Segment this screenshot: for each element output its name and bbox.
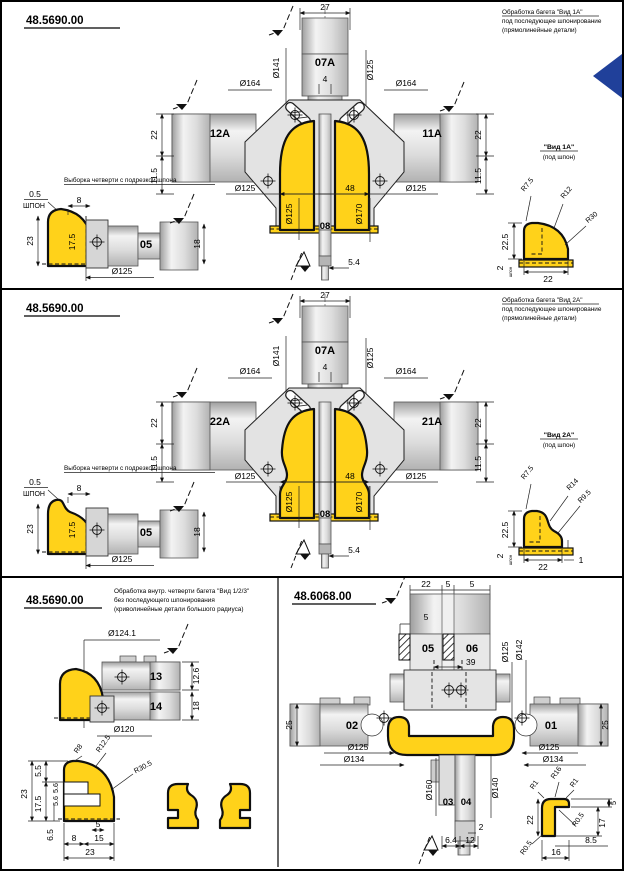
profile-detail: R16 R1 R1 5 17 R0.5 8.5 16 22 R0.5 xyxy=(518,765,618,861)
shaft-label: 08 xyxy=(320,509,331,520)
dim: Ø160 xyxy=(424,779,434,800)
dim: 22 xyxy=(421,579,431,589)
roughness-icon xyxy=(440,82,464,112)
dim: Ø125 xyxy=(112,554,133,564)
dim: Ø125 xyxy=(365,59,375,80)
block-label: 01 xyxy=(545,720,557,732)
moulding-sample xyxy=(168,784,198,828)
dim: 0.5 xyxy=(29,477,41,487)
radius-dim: R16 xyxy=(548,765,563,781)
dim: 11.5 xyxy=(473,168,483,184)
rebate-subdrawing: Выборка четверти с подрезкой шпона 0.5 Ш… xyxy=(23,464,215,569)
dim: 22 xyxy=(149,418,159,428)
dim: 22 xyxy=(543,274,553,284)
dim: 17 xyxy=(597,818,607,828)
note-line: под последующее шпонирование xyxy=(502,306,602,313)
roughness-icon xyxy=(382,578,406,604)
dim: 23 xyxy=(25,524,35,534)
knife-insert xyxy=(443,634,454,660)
radius-dim: R30.5 xyxy=(132,758,153,775)
machining-icon xyxy=(291,540,310,568)
roughness-icon xyxy=(269,6,293,36)
dim: 5 xyxy=(609,801,618,805)
dim: 8 xyxy=(77,483,82,493)
machining-icon xyxy=(419,836,438,864)
dim: Ø125 xyxy=(500,641,510,662)
dim: 22 xyxy=(538,562,548,572)
dim: Ø141 xyxy=(271,57,281,78)
subdrawing-title: Выборка четверти с подрезкой шпона xyxy=(64,464,177,472)
dim: Ø125 xyxy=(348,742,369,752)
roughness-icon xyxy=(269,294,293,324)
dim: 1 xyxy=(579,555,584,565)
profile-notch xyxy=(64,794,100,806)
note-line: Обработка внутр. четверти багета "Вид 1/… xyxy=(114,587,249,595)
panel-vid-1a: 48.5690.00 Обработка багета "Вид 1А" под… xyxy=(2,2,622,290)
view-subtitle: (под шпон) xyxy=(543,154,575,161)
dim: 5 xyxy=(470,579,475,589)
dim: 25 xyxy=(600,720,610,730)
veneer-word: шпон xyxy=(508,554,513,565)
dim: Ø164 xyxy=(396,366,417,376)
roughness-icon xyxy=(440,370,464,400)
roughness-icon xyxy=(170,482,194,512)
machining-icon xyxy=(291,252,310,280)
spindle-label: 07А xyxy=(315,57,335,69)
dim: 48 xyxy=(345,183,355,193)
dim: 22 xyxy=(473,418,483,428)
panel-vid-2a: 48.5690.00 Обработка багета "Вид 2А" под… xyxy=(2,290,622,578)
view-title: "Вид 2А" xyxy=(544,432,574,439)
dim: 12 xyxy=(465,835,475,845)
note-line: без последующего шпонирования xyxy=(114,596,215,604)
dim: 2 xyxy=(495,553,505,558)
shaft-label: 08 xyxy=(320,221,331,232)
dim: 0.5 xyxy=(29,189,41,199)
veneer-strip xyxy=(519,548,573,555)
panel-1-drawing: 48.5690.00 Обработка багета "Вид 1А" под… xyxy=(2,2,622,288)
profile-view-detail: "Вид 1А" (под шпон) R7.5 R12 R30 22.5 2 … xyxy=(495,144,599,284)
note-line: (прямолинейные детали) xyxy=(502,314,577,322)
dim: 18 xyxy=(191,701,201,711)
dim: 18 xyxy=(192,239,202,249)
shaft xyxy=(319,114,331,280)
dim: Ø125 xyxy=(365,347,375,368)
dim: 25 xyxy=(284,720,294,730)
dim: 8 xyxy=(77,195,82,205)
dim: 22 xyxy=(473,130,483,140)
block-label: 12А xyxy=(210,128,230,140)
dim: 22 xyxy=(149,130,159,140)
dim: 17.5 xyxy=(67,521,77,538)
roughness-icon xyxy=(173,368,197,398)
profile-detail: R8 R12.5 R30.5 5.5 23 17.5 5.6 5.6 6.5 5… xyxy=(19,733,153,861)
dim: 2 xyxy=(495,265,505,270)
dim: Ø124.1 xyxy=(108,628,136,638)
note-line: Обработка багета "Вид 2А" xyxy=(502,296,582,304)
block-label: 11А xyxy=(422,128,442,140)
dim: 5 xyxy=(446,579,451,589)
dim: 22.5 xyxy=(500,233,510,250)
drawing-number: 48.5690.00 xyxy=(26,303,84,315)
view-title: "Вид 1А" xyxy=(544,144,574,151)
block-label: 13 xyxy=(150,671,162,683)
veneer-strip xyxy=(519,260,573,267)
block-label: 21А xyxy=(422,416,442,428)
dim: 22.5 xyxy=(500,521,510,538)
dim: 23 xyxy=(85,847,95,857)
radius-dim: R0.5 xyxy=(570,811,586,829)
block-label: 05 xyxy=(140,239,152,251)
knife-insert xyxy=(399,634,410,660)
dim: Ø125 xyxy=(284,491,294,512)
dim: 5.4 xyxy=(348,545,360,555)
block-label: 14 xyxy=(150,701,163,713)
block-label: 22А xyxy=(210,416,230,428)
dim: Ø125 xyxy=(406,471,427,481)
moulding-profile xyxy=(542,799,569,836)
dim: Ø164 xyxy=(240,78,261,88)
panel-2-drawing: 48.5690.00 Обработка багета "Вид 2А" под… xyxy=(2,290,622,576)
roughness-icon xyxy=(170,194,194,224)
radius-dim: R14 xyxy=(564,476,580,492)
dim: 27 xyxy=(320,2,330,12)
dim: Ø125 xyxy=(284,203,294,224)
dim: Ø125 xyxy=(235,183,256,193)
dim: Ø164 xyxy=(396,78,417,88)
dim: Ø120 xyxy=(114,724,135,734)
dim: 16 xyxy=(551,847,561,857)
dim: 23 xyxy=(19,789,29,799)
block-label: 02 xyxy=(346,720,358,732)
dim: 23 xyxy=(25,236,35,246)
dim: Ø125 xyxy=(235,471,256,481)
note-line: Обработка багета "Вид 1А" xyxy=(502,8,582,16)
cup-knife-profile xyxy=(388,717,514,755)
drawing-sheet: 48.5690.00 Обработка багета "Вид 1А" под… xyxy=(0,0,624,871)
dim: 15 xyxy=(94,833,104,843)
dim: 18 xyxy=(192,527,202,537)
moulding-sample xyxy=(220,784,250,828)
subdrawing-title: Выборка четверти с подрезкой шпона xyxy=(64,176,177,184)
dim: 5.4 xyxy=(348,257,360,267)
note-line: под последующее шпонирование xyxy=(502,18,602,25)
dim: Ø170 xyxy=(354,203,364,224)
block-label: 03 xyxy=(443,797,454,808)
radius-dim: R7.5 xyxy=(519,464,536,481)
radius-dim: R7.5 xyxy=(519,176,536,193)
dim: Ø170 xyxy=(354,491,364,512)
block-label: 05 xyxy=(140,527,152,539)
dim: 11.5 xyxy=(473,456,483,472)
veneer-label: ШПОН xyxy=(23,203,45,210)
dim: 5.6 xyxy=(51,796,60,806)
rebate-subdrawing: Выборка четверти с подрезкой шпона 0.5 Ш… xyxy=(23,176,215,281)
note-block: Обработка внутр. четверти багета "Вид 1/… xyxy=(114,587,249,613)
dim: Ø140 xyxy=(490,777,500,798)
dim: 27 xyxy=(320,290,330,300)
note-block: Обработка багета "Вид 2А" под последующе… xyxy=(502,296,602,322)
dim: 12.6 xyxy=(191,667,201,684)
radius-dim: R8 xyxy=(72,742,85,755)
dim: Ø125 xyxy=(112,266,133,276)
roughness-icon xyxy=(173,80,197,110)
dim: Ø142 xyxy=(514,639,524,660)
dim: 4 xyxy=(323,74,328,84)
dim: 6.4 xyxy=(445,835,457,845)
radius-dim: R9.5 xyxy=(576,488,593,505)
dim: 39 xyxy=(466,657,476,667)
radius-dim: R12 xyxy=(558,184,573,200)
dim: 17.5 xyxy=(67,233,77,250)
note-block: Обработка багета "Вид 1А" под последующе… xyxy=(502,8,602,34)
dim: Ø125 xyxy=(406,183,427,193)
radius-dim: R30 xyxy=(583,209,599,224)
dim: 22 xyxy=(525,815,535,825)
roughness-icon xyxy=(164,624,188,654)
drawing-number: 48.5690.00 xyxy=(26,15,84,27)
panel-inner-quarter: 48.5690.00 Обработка внутр. четверти баг… xyxy=(2,578,622,867)
profile-notch xyxy=(64,782,88,794)
dim: 48 xyxy=(345,471,355,481)
dim: 17.5 xyxy=(33,795,43,812)
dim: 5 xyxy=(424,612,429,622)
panel-3-drawing: 48.5690.00 Обработка внутр. четверти баг… xyxy=(2,578,622,867)
dim: Ø134 xyxy=(344,754,365,764)
block-label: 05 xyxy=(422,643,434,655)
dim: 6.5 xyxy=(45,829,55,841)
dim: 8.5 xyxy=(585,835,597,845)
dim: Ø141 xyxy=(271,345,281,366)
dim: Ø134 xyxy=(543,754,564,764)
note-line: (прямолинейные детали) xyxy=(502,26,577,34)
moulding-profile xyxy=(524,223,568,259)
drawing-number: 48.6068.00 xyxy=(294,591,352,603)
veneer-label: ШПОН xyxy=(23,491,45,498)
veneer-word: шпон xyxy=(508,266,513,277)
dim: 5.6 xyxy=(51,783,60,793)
dim: 5.5 xyxy=(33,765,43,777)
dim: Ø125 xyxy=(539,742,560,752)
dim: Ø164 xyxy=(240,366,261,376)
view-subtitle: (под шпон) xyxy=(543,442,575,449)
dim: 4 xyxy=(323,362,328,372)
profile-view-detail: "Вид 2А" (под шпон) R7.5 R14 R9.5 22.5 2… xyxy=(495,432,593,572)
block-label: 06 xyxy=(466,643,478,655)
dim: 8 xyxy=(72,833,77,843)
drawing-number: 48.5690.00 xyxy=(26,595,84,607)
dim: 2 xyxy=(479,822,484,832)
shaft xyxy=(319,402,331,568)
note-line: (криволинейные детали большого радиуса) xyxy=(114,605,243,613)
blue-nav-arrow-icon xyxy=(593,54,622,98)
radius-dim: R0.5 xyxy=(518,839,534,857)
radius-dim: R1 xyxy=(568,776,581,789)
spindle-label: 07А xyxy=(315,345,335,357)
radius-dim: R1 xyxy=(528,778,541,791)
block-label: 04 xyxy=(461,797,472,808)
dim: 5 xyxy=(96,819,101,829)
